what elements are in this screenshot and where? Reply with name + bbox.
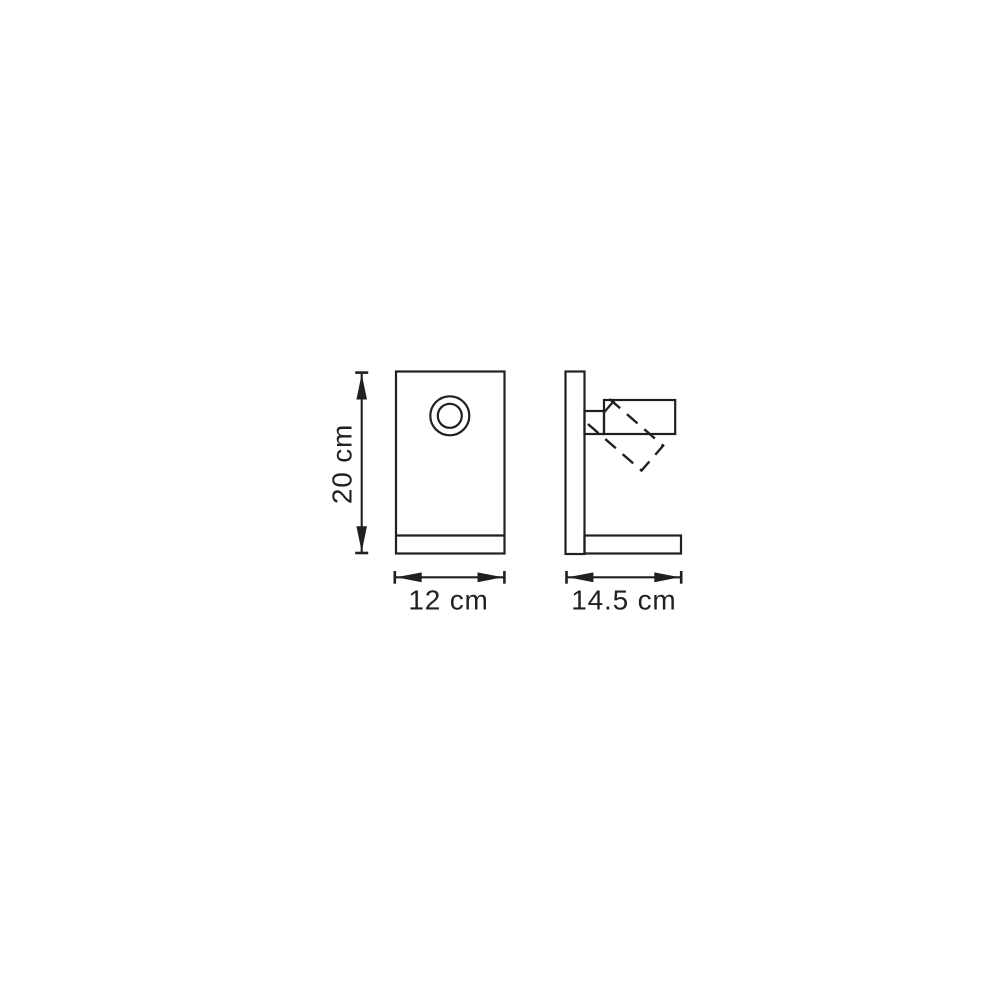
side-view	[566, 372, 682, 555]
side-wall-plate-outline	[566, 372, 585, 555]
height-dimension-label: 20 cm	[327, 424, 358, 504]
dimension-height: 20 cm	[327, 373, 369, 553]
side-base-plate-outline	[585, 536, 682, 554]
width-arrow-left-icon	[396, 572, 422, 582]
depth-arrow-left-icon	[568, 572, 594, 582]
dimension-width: 12 cm	[395, 571, 505, 616]
front-view	[396, 372, 505, 554]
dimension-depth: 14.5 cm	[567, 571, 682, 616]
height-arrow-up-icon	[356, 374, 367, 400]
drawing-canvas: 20 cm 12 cm 14.5 cm	[0, 0, 1000, 1000]
depth-dimension-label: 14.5 cm	[571, 585, 676, 616]
front-body-outline	[396, 372, 505, 554]
spot-outer-ring	[430, 396, 469, 435]
spot-inner-ring	[438, 404, 462, 428]
depth-arrow-right-icon	[654, 572, 680, 582]
dimension-drawing: 20 cm 12 cm 14.5 cm	[0, 0, 1000, 1000]
width-dimension-label: 12 cm	[408, 585, 488, 616]
height-arrow-down-icon	[356, 526, 367, 552]
width-arrow-right-icon	[478, 572, 504, 582]
